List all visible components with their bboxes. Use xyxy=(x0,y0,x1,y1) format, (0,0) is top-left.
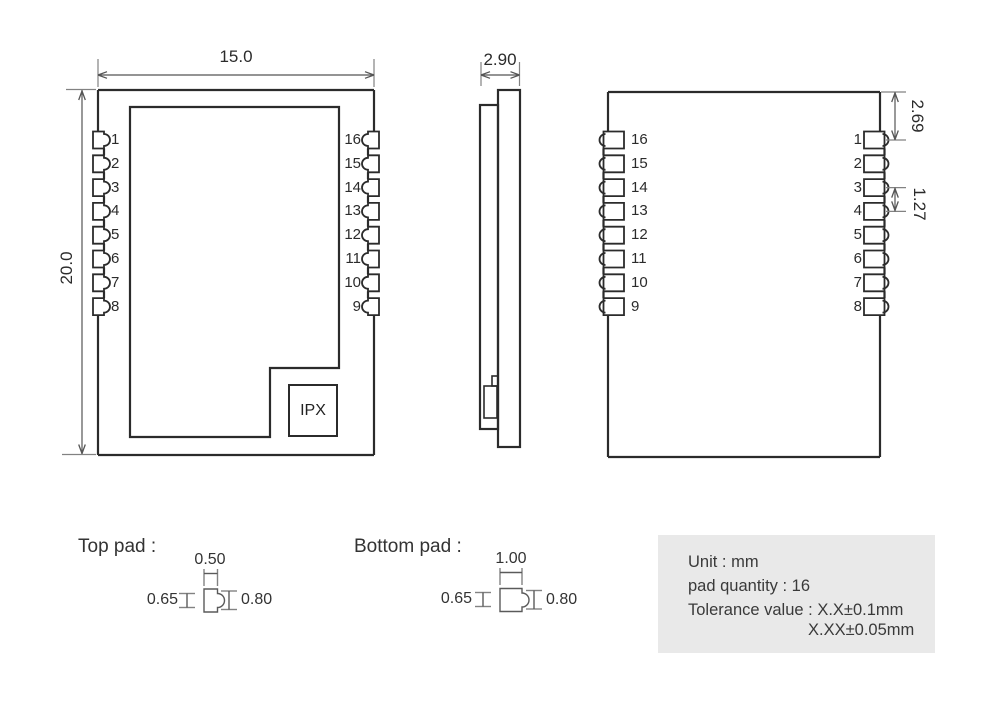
bottom-pad xyxy=(604,251,625,268)
info-unit: Unit : mm xyxy=(688,552,759,572)
pin-label-9: 9 xyxy=(335,298,361,316)
bottom-pad-left-value: 0.65 xyxy=(422,590,472,608)
bottom-pad xyxy=(604,179,625,196)
bottom-pad xyxy=(604,203,625,220)
bottom-pad xyxy=(604,155,625,172)
side-view-pcb xyxy=(498,90,520,447)
bottom-pad xyxy=(864,155,885,172)
dim-label-pin-pitch: 1.27 xyxy=(909,174,929,234)
castellated-pad xyxy=(362,251,379,268)
pin-label-4: 4 xyxy=(111,202,135,220)
pin-label-8: 8 xyxy=(838,298,862,316)
castellated-pad xyxy=(93,179,110,196)
castellation-half-hole xyxy=(600,205,606,217)
castellation-half-hole xyxy=(883,277,889,289)
dim-label-width: 15.0 xyxy=(206,47,266,67)
pin-label-13: 13 xyxy=(631,202,657,220)
dim-label-top-clearance: 2.69 xyxy=(907,86,927,146)
castellated-pad xyxy=(93,298,110,315)
pin-label-10: 10 xyxy=(335,274,361,292)
castellation-half-hole xyxy=(600,134,606,146)
top-pad-left-value: 0.65 xyxy=(128,591,178,609)
bottom-pad xyxy=(604,132,625,149)
info-pad-quantity: pad quantity : 16 xyxy=(688,576,810,596)
pin-label-3: 3 xyxy=(838,179,862,197)
pin-label-5: 5 xyxy=(111,226,135,244)
pin-label-15: 15 xyxy=(335,155,361,173)
castellation-half-hole xyxy=(600,253,606,265)
side-view-body xyxy=(480,105,498,429)
info-tolerance-2: X.XX±0.05mm xyxy=(808,620,914,640)
pin-label-1: 1 xyxy=(111,131,135,149)
castellated-pad xyxy=(93,155,110,172)
pad-detail-shape xyxy=(204,589,225,612)
dim-label-thickness: 2.90 xyxy=(470,50,530,70)
castellation-half-hole xyxy=(600,158,606,170)
castellated-pad xyxy=(362,227,379,244)
pin-label-4: 4 xyxy=(838,202,862,220)
pin-label-11: 11 xyxy=(631,250,657,268)
bottom-pad xyxy=(864,179,885,196)
pin-label-5: 5 xyxy=(838,226,862,244)
module-dimension-drawing: 15.0 20.0 2.90 2.69 1.27 IPX Top pad : B… xyxy=(0,0,1000,702)
bottom-pad xyxy=(604,274,625,291)
pin-label-14: 14 xyxy=(631,179,657,197)
pin-label-2: 2 xyxy=(111,155,135,173)
top-pad-width-value: 0.50 xyxy=(180,551,240,569)
castellated-pad xyxy=(362,132,379,149)
side-view-ipx-profile xyxy=(484,386,497,418)
bottom-pad xyxy=(864,227,885,244)
castellated-pad xyxy=(362,298,379,315)
castellated-pad xyxy=(362,274,379,291)
pin-label-15: 15 xyxy=(631,155,657,173)
castellation-half-hole xyxy=(600,229,606,241)
top-pad-title: Top pad : xyxy=(78,536,156,558)
castellated-pad xyxy=(93,227,110,244)
pin-label-6: 6 xyxy=(838,250,862,268)
pin-label-1: 1 xyxy=(838,131,862,149)
castellation-half-hole xyxy=(883,253,889,265)
ipx-connector-label: IPX xyxy=(289,402,337,420)
pin-label-8: 8 xyxy=(111,298,135,316)
pin-label-7: 7 xyxy=(111,274,135,292)
pin-label-12: 12 xyxy=(631,226,657,244)
pin-label-14: 14 xyxy=(335,179,361,197)
bottom-pad xyxy=(864,274,885,291)
pin-label-16: 16 xyxy=(631,131,657,149)
pin-label-9: 9 xyxy=(631,298,657,316)
pin-label-11: 11 xyxy=(335,250,361,268)
pin-label-10: 10 xyxy=(631,274,657,292)
castellation-half-hole xyxy=(883,229,889,241)
castellated-pad xyxy=(362,179,379,196)
castellated-pad xyxy=(93,251,110,268)
bottom-pad-title: Bottom pad : xyxy=(354,536,462,558)
pin-label-3: 3 xyxy=(111,179,135,197)
castellated-pad xyxy=(93,274,110,291)
castellated-pad xyxy=(362,203,379,220)
castellation-half-hole xyxy=(600,301,606,313)
pin-label-2: 2 xyxy=(838,155,862,173)
pad-detail-shape xyxy=(500,589,529,612)
shield-outline xyxy=(130,107,339,437)
pin-label-12: 12 xyxy=(335,226,361,244)
top-pad-right-value: 0.80 xyxy=(241,591,291,609)
bottom-pad xyxy=(604,227,625,244)
bottom-pad xyxy=(864,132,885,149)
castellated-pad xyxy=(362,155,379,172)
castellation-half-hole xyxy=(600,182,606,194)
info-tolerance-1: Tolerance value : X.X±0.1mm xyxy=(688,600,903,620)
bottom-pad xyxy=(864,251,885,268)
bottom-pad xyxy=(864,298,885,315)
castellated-pad xyxy=(93,132,110,149)
bottom-pad-width-value: 1.00 xyxy=(481,550,541,568)
pin-label-16: 16 xyxy=(335,131,361,149)
bottom-pad-right-value: 0.80 xyxy=(546,591,596,609)
castellation-half-hole xyxy=(883,301,889,313)
castellation-half-hole xyxy=(600,277,606,289)
pin-label-6: 6 xyxy=(111,250,135,268)
pin-label-7: 7 xyxy=(838,274,862,292)
castellated-pad xyxy=(93,203,110,220)
pin-label-13: 13 xyxy=(335,202,361,220)
dim-label-height: 20.0 xyxy=(57,238,77,298)
bottom-pad xyxy=(864,203,885,220)
castellation-half-hole xyxy=(883,158,889,170)
bottom-pad xyxy=(604,298,625,315)
